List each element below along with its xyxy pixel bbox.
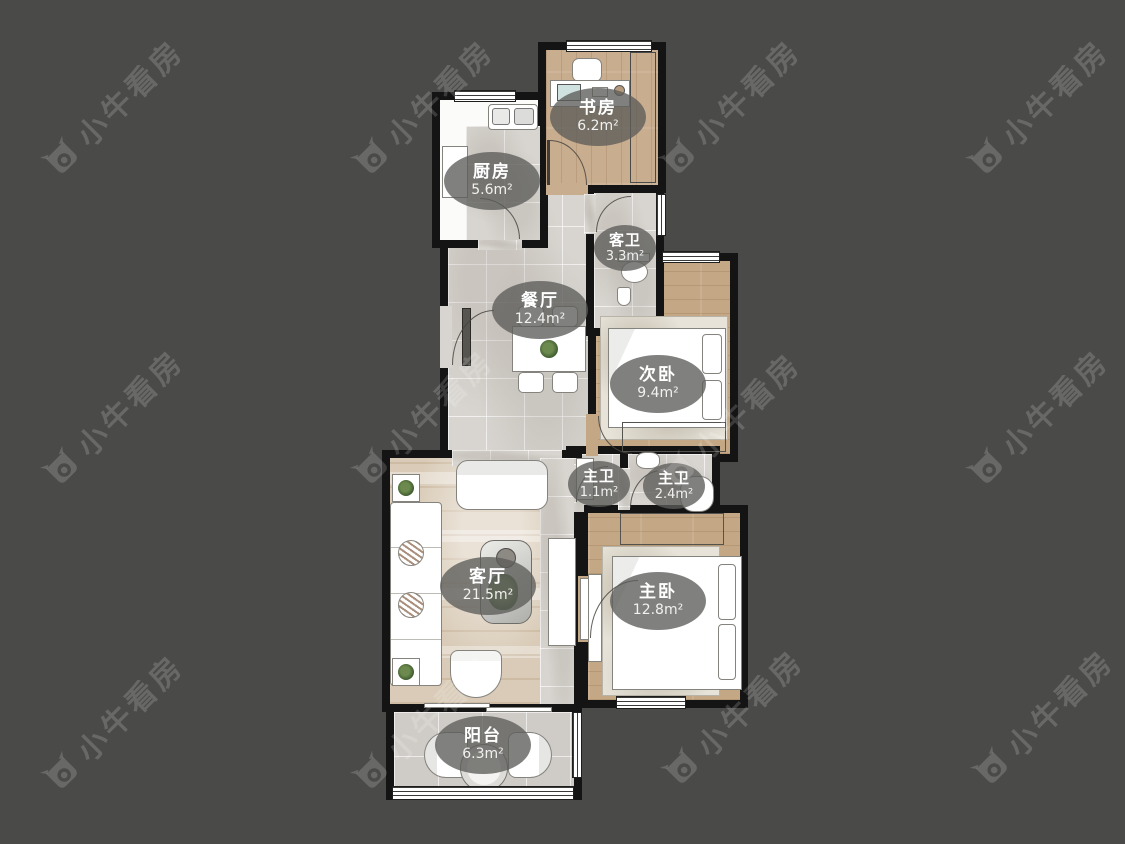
label-second-bedroom: 次卧 9.4m² xyxy=(610,355,706,413)
dining-plant xyxy=(540,340,558,358)
window-study-top xyxy=(566,40,652,52)
plant-icon xyxy=(398,664,414,680)
kitchen-sink-basin-right xyxy=(514,108,534,125)
room-area: 5.6m² xyxy=(471,182,513,199)
kitchen-sink-basin-left xyxy=(492,108,510,125)
watermark-text: 小牛看房 xyxy=(995,638,1122,765)
label-guest-bathroom: 客卫 3.3m² xyxy=(594,225,656,271)
floorplan-canvas: 书房 6.2m² 厨房 5.6m² 客卫 3.3m² 餐厅 12.4m² 次卧 … xyxy=(0,0,1125,844)
room-name: 书房 xyxy=(579,99,617,119)
room-name: 主卫 xyxy=(658,470,690,487)
living-tv-cabinet xyxy=(548,538,576,646)
room-area: 2.4m² xyxy=(655,487,694,503)
label-balcony: 阳台 6.3m² xyxy=(435,716,531,774)
living-loveseat xyxy=(456,460,548,510)
master-door-leaf xyxy=(580,578,589,640)
bedroom2-wardrobe xyxy=(622,422,726,452)
window-balcony-bottom xyxy=(392,786,574,800)
sofa-pillow xyxy=(398,540,424,566)
watermark-text: 小牛看房 xyxy=(65,643,192,770)
watermark-text: 小牛看房 xyxy=(682,28,809,155)
opening-bedroom2-door xyxy=(586,414,598,456)
bull-logo-icon xyxy=(657,742,708,793)
label-dining: 餐厅 12.4m² xyxy=(492,281,588,339)
watermark: 小牛看房 xyxy=(34,28,192,186)
dining-chair xyxy=(518,372,544,393)
bull-logo-icon xyxy=(967,742,1018,793)
window-guestbath-right xyxy=(656,194,666,236)
watermark: 小牛看房 xyxy=(959,28,1117,186)
plant-icon xyxy=(398,480,414,496)
room-name: 主卧 xyxy=(639,583,677,603)
room-area: 12.8m² xyxy=(633,602,683,619)
room-name: 主卫 xyxy=(583,468,615,485)
bull-logo-icon xyxy=(37,132,88,183)
window-kitchen-top xyxy=(454,90,516,102)
room-area: 3.3m² xyxy=(606,249,645,265)
room-area: 1.1m² xyxy=(580,485,619,501)
opening-entrance xyxy=(440,306,452,368)
room-area: 6.3m² xyxy=(462,746,504,763)
watermark-text: 小牛看房 xyxy=(990,338,1117,465)
sofa-pillow xyxy=(398,592,424,618)
watermark: 小牛看房 xyxy=(651,28,809,186)
watermark-text: 小牛看房 xyxy=(65,338,192,465)
room-area: 6.2m² xyxy=(577,118,619,135)
watermark: 小牛看房 xyxy=(34,338,192,496)
bull-logo-icon xyxy=(37,442,88,493)
label-master-bedroom: 主卧 12.8m² xyxy=(610,572,706,630)
room-name: 客卫 xyxy=(609,232,641,249)
room-area: 9.4m² xyxy=(637,385,679,402)
window-balcony-right xyxy=(572,712,582,778)
bull-logo-icon xyxy=(962,442,1013,493)
label-kitchen: 厨房 5.6m² xyxy=(444,152,540,210)
label-master-bath-inner: 主卫 1.1m² xyxy=(568,461,630,507)
watermark: 小牛看房 xyxy=(34,643,192,801)
dining-chair xyxy=(552,372,578,393)
room-name: 次卧 xyxy=(639,366,677,386)
bedroom2-pillow xyxy=(702,334,722,374)
sliding-panel xyxy=(486,707,552,712)
bull-logo-icon xyxy=(962,132,1013,183)
watermark: 小牛看房 xyxy=(959,338,1117,496)
label-study: 书房 6.2m² xyxy=(550,88,646,146)
room-name: 阳台 xyxy=(464,727,502,747)
room-name: 客厅 xyxy=(469,568,507,588)
sliding-door-balcony xyxy=(424,700,552,714)
label-master-bathroom: 主卫 2.4m² xyxy=(643,463,705,509)
room-area: 21.5m² xyxy=(463,587,513,604)
watermark-text: 小牛看房 xyxy=(65,28,192,155)
master-pillow xyxy=(718,564,736,620)
watermark-text: 小牛看房 xyxy=(990,28,1117,155)
master-pillow xyxy=(718,624,736,680)
label-living: 客厅 21.5m² xyxy=(440,557,536,615)
room-area: 12.4m² xyxy=(515,311,565,328)
study-chair xyxy=(572,58,602,82)
opening-guestbath-door xyxy=(584,194,596,234)
sliding-panel xyxy=(424,703,490,708)
window-master-bottom xyxy=(616,696,686,709)
master-wardrobe xyxy=(620,513,724,545)
window-bedroom2-top xyxy=(662,251,720,263)
watermark: 小牛看房 xyxy=(964,638,1122,796)
bull-logo-icon xyxy=(347,132,398,183)
bull-logo-icon xyxy=(37,747,88,798)
room-name: 餐厅 xyxy=(521,292,559,312)
room-name: 厨房 xyxy=(473,163,511,183)
guestbath-sink xyxy=(617,287,631,306)
